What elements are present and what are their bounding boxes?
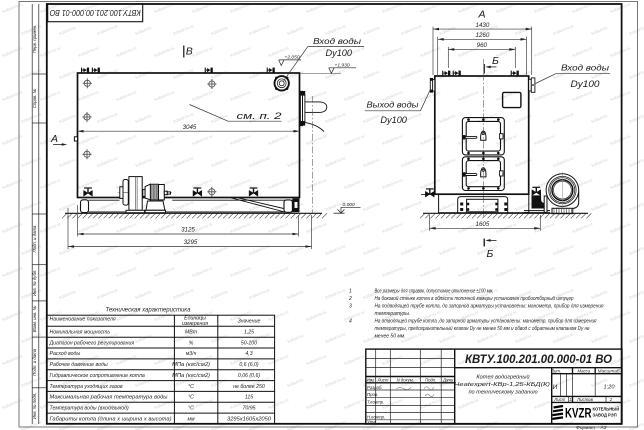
svg-text:2: 2	[348, 296, 352, 302]
svg-text:3125: 3125	[181, 227, 195, 234]
svg-text:1,25: 1,25	[244, 330, 254, 336]
svg-text:Наименование показателя: Наименование показателя	[50, 316, 116, 322]
svg-text:Подп. и дата: Подп. и дата	[32, 348, 37, 376]
svg-text:А: А	[50, 133, 58, 145]
svg-text:менее 50 мм.: менее 50 мм.	[375, 333, 406, 339]
svg-text:Лит.: Лит.	[550, 368, 561, 373]
svg-text:Максимальная рабочая температу: Максимальная рабочая температура воды	[50, 395, 168, 401]
svg-text:Dy100: Dy100	[571, 79, 601, 90]
svg-text:Масса: Масса	[577, 368, 590, 373]
svg-text:КОТЕЛЬНЫЙ: КОТЕЛЬНЫЙ	[593, 407, 620, 412]
svg-text:Все размеры для справок, допус: Все размеры для справок, допустимое откл…	[375, 288, 494, 294]
svg-text:Температура воды (вход/выход): Температура воды (вход/выход)	[50, 406, 129, 412]
svg-text:KVZR: KVZR	[565, 406, 592, 421]
svg-text:по техническому заданию: по техническому заданию	[468, 389, 538, 395]
svg-text:МВт: МВт	[185, 330, 198, 336]
svg-text:КВТУ.100.201.00.000-01 ВО: КВТУ.100.201.00.000-01 ВО	[50, 8, 141, 17]
svg-text:+1.930: +1.930	[335, 62, 350, 68]
svg-text:В: В	[186, 46, 193, 58]
svg-text:°С: °С	[188, 406, 194, 412]
svg-text:1605: 1605	[476, 221, 490, 228]
svg-text:Листов: Листов	[576, 397, 593, 402]
svg-text:Dy100: Dy100	[380, 115, 407, 126]
svg-text:Диапазон рабочего регулировани: Диапазон рабочего регулирования	[49, 340, 135, 346]
svg-text:На боковой стенке котла в обла: На боковой стенке котла в области топочн…	[375, 295, 574, 302]
svg-text:КВТУ.100.201.00.000-01 ВО: КВТУ.100.201.00.000-01 ВО	[465, 352, 613, 366]
svg-text:Б: Б	[492, 55, 499, 67]
svg-text:3: 3	[349, 304, 352, 310]
svg-text:1:20: 1:20	[604, 385, 616, 391]
svg-text:Взам. инв. №: Взам. инв. №	[32, 305, 37, 332]
svg-text:0.000: 0.000	[343, 202, 356, 208]
svg-text:ЗАВОД РЭП: ЗАВОД РЭП	[593, 413, 617, 418]
svg-text:Вход воды: Вход воды	[561, 63, 609, 72]
svg-text:МПа (кгс/см2): МПа (кгс/см2)	[172, 362, 210, 368]
svg-text:%: %	[189, 340, 194, 346]
svg-text:Перв. примен.: Перв. примен.	[32, 25, 37, 54]
svg-text:см. п. 2: см. п. 2	[237, 111, 282, 121]
svg-text:1: 1	[349, 288, 352, 294]
svg-text:На подводящей трубе котла, до: На подводящей трубе котла, до запорной а…	[375, 303, 604, 310]
svg-text:Подп. и дата: Подп. и дата	[32, 225, 37, 253]
svg-text:Справ. №: Справ. №	[32, 88, 37, 108]
svg-text:Формат: Формат	[576, 425, 595, 430]
svg-text:Heatexpert-КВр-1,25-КБД(К): Heatexpert-КВр-1,25-КБД(К)	[454, 382, 550, 388]
svg-text:А3: А3	[600, 425, 607, 430]
svg-text:Б: Б	[487, 248, 494, 260]
svg-text:Номинальная мощность: Номинальная мощность	[50, 330, 111, 336]
svg-text:Лист: Лист	[377, 377, 389, 382]
svg-text:Гидравлическое сопротивление к: Гидравлическое сопротивление котла	[50, 373, 145, 379]
svg-text:На отводящей трубе котла ,до з: На отводящей трубе котла ,до запорной ар…	[375, 318, 597, 325]
svg-text:Т.контр.: Т.контр.	[367, 399, 384, 404]
svg-text:температуры.: температуры.	[375, 311, 411, 317]
svg-text:50-100: 50-100	[241, 340, 257, 346]
svg-text:Пров.: Пров.	[367, 392, 378, 397]
svg-text:Подп.: Подп.	[425, 377, 436, 382]
svg-text:3295х1605х2050: 3295х1605х2050	[227, 416, 271, 422]
svg-text:4: 4	[349, 319, 352, 325]
svg-text:Рабочее давление воды: Рабочее давление воды	[50, 362, 108, 368]
svg-text:1260: 1260	[476, 32, 490, 39]
svg-text:Котел водогрейный: Котел водогрейный	[476, 373, 529, 380]
svg-text:4,3: 4,3	[245, 351, 252, 357]
svg-text:960: 960	[477, 42, 488, 49]
svg-text:Расход воды: Расход воды	[50, 351, 81, 357]
svg-text:измерения: измерения	[182, 321, 208, 327]
svg-text:м3/ч: м3/ч	[186, 351, 197, 357]
svg-text:И: И	[553, 384, 558, 391]
svg-text:МПа (кгс/см2): МПа (кгс/см2)	[172, 373, 210, 379]
svg-text:мм: мм	[187, 416, 195, 422]
svg-text:температуры, предохранительный: температуры, предохранительный клапан Dу…	[375, 325, 590, 332]
svg-text:70/95: 70/95	[243, 406, 256, 412]
svg-text:°С: °С	[188, 395, 194, 401]
svg-text:Лист: Лист	[553, 397, 565, 402]
svg-text:N докум.: N докум.	[397, 377, 414, 382]
svg-text:Значение: Значение	[238, 319, 261, 325]
svg-text:Dy100: Dy100	[326, 48, 353, 59]
svg-text:Дата: Дата	[442, 377, 454, 382]
svg-text:Габариты котла (длина х ширина: Габариты котла (длина х ширина х высота)	[50, 416, 172, 422]
svg-text:3045: 3045	[183, 124, 197, 131]
svg-text:А: А	[478, 9, 486, 21]
svg-text:не более 250: не более 250	[233, 384, 265, 390]
svg-text:Выход воды: Выход воды	[367, 101, 419, 110]
svg-text:3295: 3295	[184, 239, 198, 246]
svg-text:1430: 1430	[476, 22, 490, 29]
svg-text:Вход воды: Вход воды	[313, 37, 361, 46]
svg-text:0,6 (6,0): 0,6 (6,0)	[239, 362, 259, 368]
svg-text:115: 115	[245, 395, 253, 401]
svg-text:Инв. № дубл.: Инв. № дубл.	[32, 270, 37, 296]
svg-text:+2.050: +2.050	[285, 54, 300, 60]
svg-text:Техническая характеристика: Техническая характеристика	[106, 308, 192, 314]
svg-text:Температура уходящих газов: Температура уходящих газов	[50, 384, 123, 390]
svg-text:Изм.: Изм.	[367, 377, 375, 382]
svg-text:0,06 (0,6): 0,06 (0,6)	[238, 373, 260, 379]
svg-text:Утв.: Утв.	[367, 419, 377, 424]
svg-text:Масштаб: Масштаб	[598, 368, 621, 373]
svg-text:Разраб.: Разраб.	[367, 385, 383, 390]
svg-text:°С: °С	[188, 384, 194, 390]
svg-text:Инв. № подл.: Инв. № подл.	[32, 393, 37, 420]
